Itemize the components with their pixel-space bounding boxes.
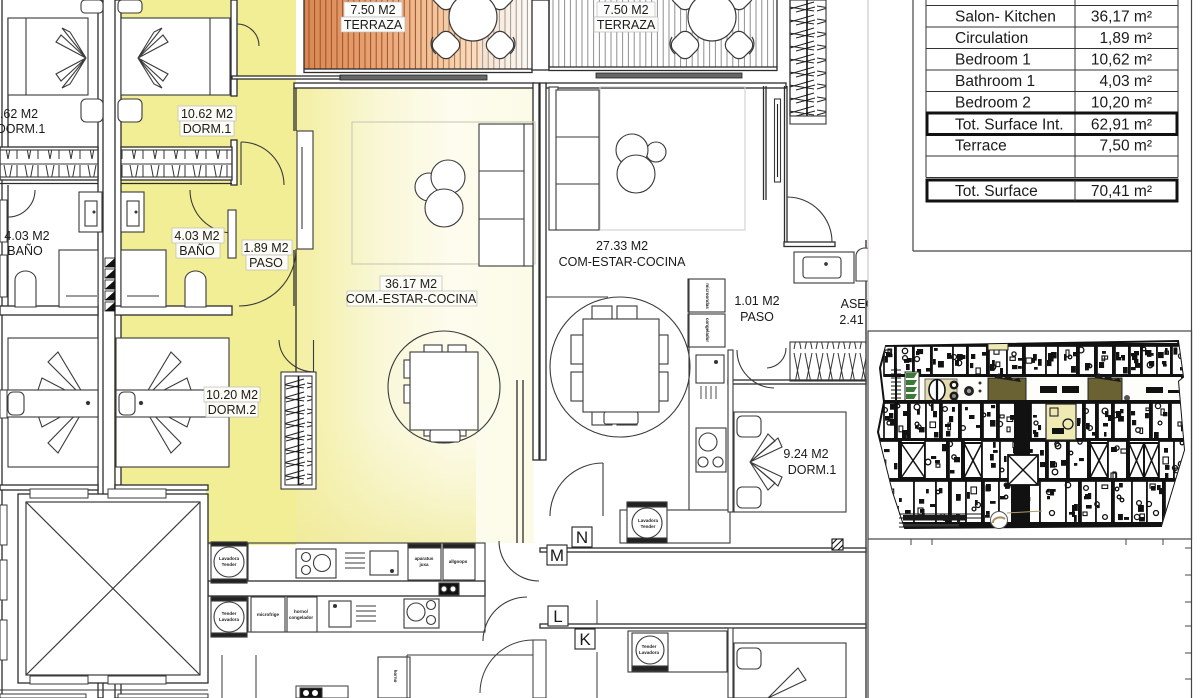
svg-text:4.03 M2: 4.03 M2 [4,229,49,243]
svg-text:7,50 m²: 7,50 m² [1099,138,1152,155]
svg-text:microfrige: microfrige [257,612,280,617]
svg-text:PASO: PASO [249,256,283,270]
svg-text:microondas: microondas [705,283,710,309]
svg-text:62,91 m²: 62,91 m² [1091,117,1152,134]
svg-text:36,17 m²: 36,17 m² [1091,9,1152,26]
svg-text:Tot. Surface: Tot. Surface [955,183,1038,200]
svg-text:Circulation: Circulation [955,30,1028,47]
svg-text:COM-ESTAR-COCINA: COM-ESTAR-COCINA [559,255,687,269]
svg-text:L: L [553,607,562,626]
svg-text:7.50 M2: 7.50 M2 [350,3,395,17]
svg-text:TERRAZA: TERRAZA [597,18,656,32]
svg-text:10,62 m²: 10,62 m² [1091,52,1152,69]
svg-text:Tot. Surface Int.: Tot. Surface Int. [955,117,1064,134]
svg-text:DORM.1: DORM.1 [183,122,232,136]
svg-text:.62 M2: .62 M2 [0,107,38,121]
svg-text:Terrace: Terrace [955,138,1007,155]
svg-text:congelador: congelador [705,318,710,343]
svg-text:COM.-ESTAR-COCINA: COM.-ESTAR-COCINA [346,292,477,306]
svg-text:TERRAZA: TERRAZA [344,18,403,32]
svg-text:M: M [550,546,564,565]
svg-text:aparatus: aparatus [415,556,434,561]
svg-text:horno/: horno/ [294,609,309,614]
svg-text:Bedroom 1: Bedroom 1 [955,52,1031,69]
svg-text:70,41 m²: 70,41 m² [1091,183,1152,200]
svg-text:10.20 M2: 10.20 M2 [206,388,258,402]
svg-text:DORM.2: DORM.2 [208,403,257,417]
svg-text:Tender: Tender [222,611,237,616]
svg-text:1,89 m²: 1,89 m² [1099,30,1152,47]
svg-text:Lavadora: Lavadora [219,617,240,622]
svg-text:1.01 M2: 1.01 M2 [734,294,779,308]
svg-text:DORM.1: DORM.1 [0,122,45,136]
svg-text:27.33 M2: 27.33 M2 [596,239,648,253]
svg-text:36.17 M2: 36.17 M2 [385,277,437,291]
svg-text:Salon- Kitchen: Salon- Kitchen [955,9,1056,26]
svg-text:Tender: Tender [641,524,656,529]
svg-text:K: K [579,630,591,649]
svg-text:BAÑO: BAÑO [7,244,43,258]
svg-text:Bathroom 1: Bathroom 1 [955,73,1035,90]
svg-text:Tender: Tender [642,644,657,649]
svg-text:9.24 M2: 9.24 M2 [783,447,828,461]
svg-text:Lavadora: Lavadora [219,556,240,561]
svg-text:congelador: congelador [289,615,314,620]
svg-text:allgoops: allgoops [449,559,468,564]
svg-text:7.50 M2: 7.50 M2 [603,3,648,17]
svg-text:1.89 M2: 1.89 M2 [243,241,288,255]
svg-text:4.03 M2: 4.03 M2 [174,229,219,243]
svg-text:N: N [576,528,588,547]
svg-text:Lavadora: Lavadora [638,518,659,523]
svg-text:juxa: juxa [418,562,429,567]
svg-text:Bedroom 2: Bedroom 2 [955,95,1031,112]
svg-text:4,03 m²: 4,03 m² [1099,73,1152,90]
svg-text:10.62 M2: 10.62 M2 [181,107,233,121]
svg-text:BAÑO: BAÑO [179,244,215,258]
svg-text:PASO: PASO [740,310,774,324]
svg-text:DORM.1: DORM.1 [788,463,837,477]
svg-text:Tender: Tender [222,562,237,567]
svg-text:Lavadora: Lavadora [639,650,660,655]
svg-text:horno: horno [393,670,398,683]
svg-text:10,20 m²: 10,20 m² [1091,95,1152,112]
